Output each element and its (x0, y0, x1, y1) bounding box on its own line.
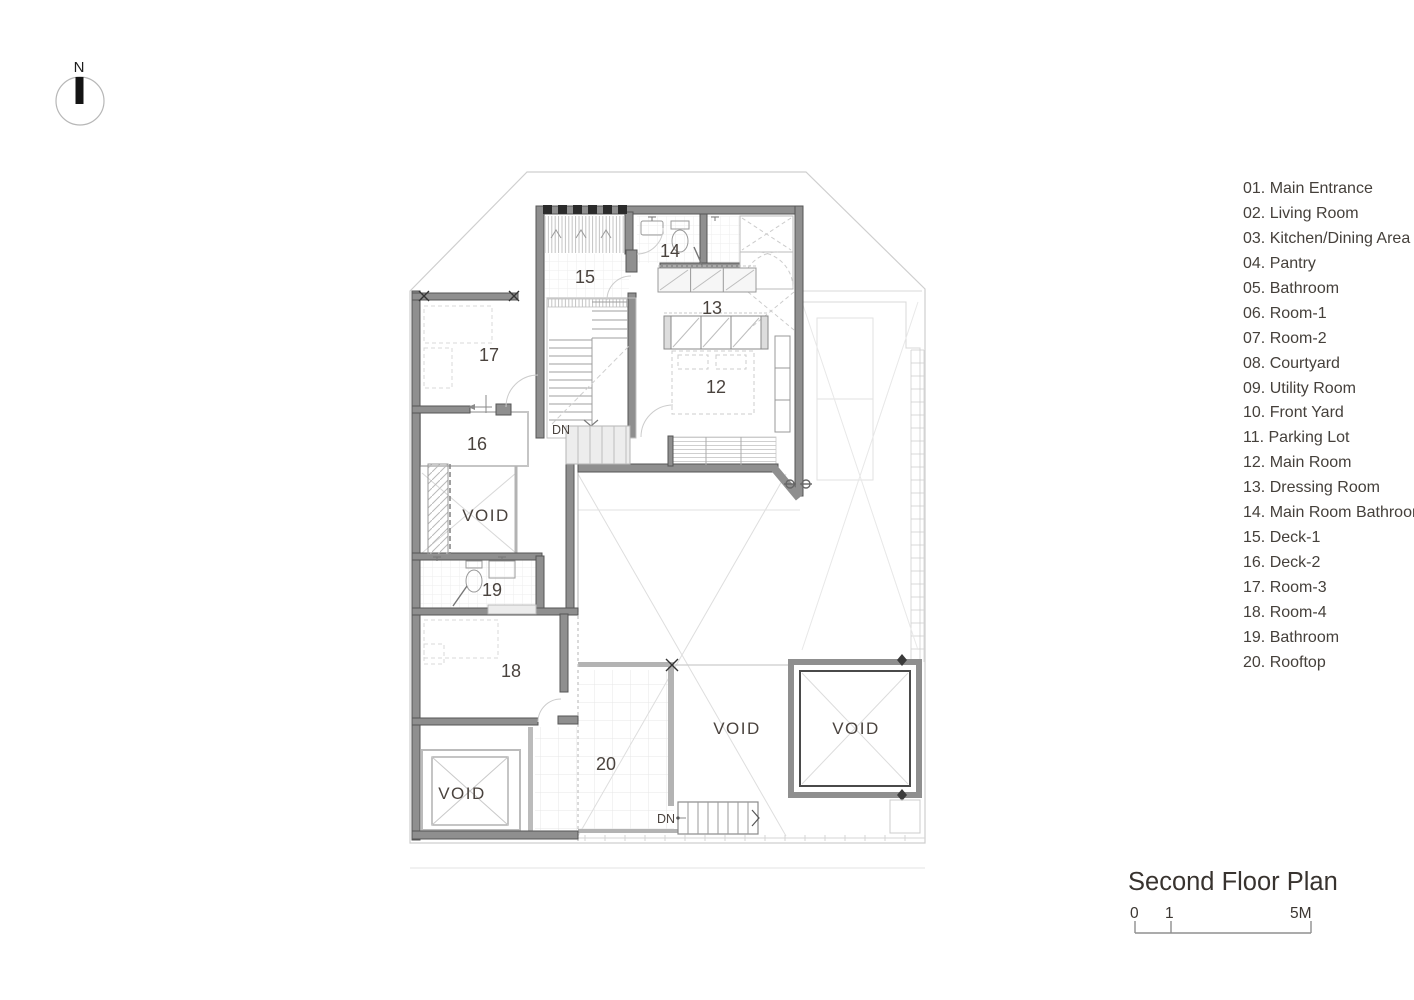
floor-plan-sheet: N (0, 0, 1414, 1000)
planter-strip (670, 437, 776, 465)
room-label-20-rooftop: 20 (596, 754, 616, 774)
legend-item-13: 13. Dressing Room (1243, 476, 1414, 501)
legend-item-05: 05. Bathroom (1243, 277, 1414, 302)
legend-item-01: 01. Main Entrance (1243, 177, 1414, 202)
north-indicator: N (56, 59, 104, 125)
void-label-shaft: VOID (832, 719, 880, 738)
legend: 01. Main Entrance02. Living Room03. Kitc… (1243, 177, 1414, 676)
north-letter: N (74, 59, 85, 76)
deck1-plank-hatch (545, 216, 628, 253)
legend-item-14: 14. Main Room Bathroom (1243, 501, 1414, 526)
legend-item-16: 16. Deck-2 (1243, 551, 1414, 576)
scale-tick-5m: 5M (1290, 905, 1312, 923)
room-label-13-dressing-room: 13 (702, 298, 722, 318)
legend-item-07: 07. Room-2 (1243, 327, 1414, 352)
legend-item-04: 04. Pantry (1243, 252, 1414, 277)
room-label-12-main-room: 12 (706, 377, 726, 397)
legend-item-20: 20. Rooftop (1243, 651, 1414, 676)
bathroom19-tiles (420, 560, 536, 608)
stair-down-label-rooftop: DN (657, 812, 675, 826)
legend-item-11: 11. Parking Lot (1243, 426, 1414, 451)
void-shaft-box (791, 654, 920, 833)
room-label-19-bathroom: 19 (482, 580, 502, 600)
void-label-west: VOID (462, 506, 510, 525)
legend-item-06: 06. Room-1 (1243, 302, 1414, 327)
page-title: Second Floor Plan (1128, 868, 1338, 897)
legend-item-18: 18. Room-4 (1243, 601, 1414, 626)
room-label-18-room-4: 18 (501, 661, 521, 681)
scale-bar (1135, 921, 1311, 933)
void-label-center: VOID (713, 719, 761, 738)
floor-plan-drawing: N (0, 0, 1414, 1000)
main-staircase (547, 298, 636, 464)
legend-item-08: 08. Courtyard (1243, 352, 1414, 377)
legend-item-02: 02. Living Room (1243, 202, 1414, 227)
room-label-15-deck-1: 15 (575, 267, 595, 287)
void-label-southwest: VOID (438, 784, 486, 803)
legend-item-19: 19. Bathroom (1243, 626, 1414, 651)
legend-item-09: 09. Utility Room (1243, 377, 1414, 402)
legend-item-15: 15. Deck-1 (1243, 526, 1414, 551)
scale-tick-0: 0 (1130, 905, 1139, 923)
scale-tick-1: 1 (1165, 905, 1174, 923)
legend-item-03: 03. Kitchen/Dining Area (1243, 227, 1414, 252)
legend-item-10: 10. Front Yard (1243, 401, 1414, 426)
stair-down-label-main: DN (552, 423, 570, 437)
north-arrow-bar (76, 77, 84, 104)
legend-item-17: 17. Room-3 (1243, 576, 1414, 601)
room-label-14-main-room-bathroom: 14 (660, 241, 680, 261)
rooftop-staircase (676, 802, 759, 834)
roof-gutter-hatch (911, 350, 924, 662)
legend-item-12: 12. Main Room (1243, 451, 1414, 476)
room-label-16-deck-2: 16 (467, 434, 487, 454)
room-label-17-room-3: 17 (479, 345, 499, 365)
